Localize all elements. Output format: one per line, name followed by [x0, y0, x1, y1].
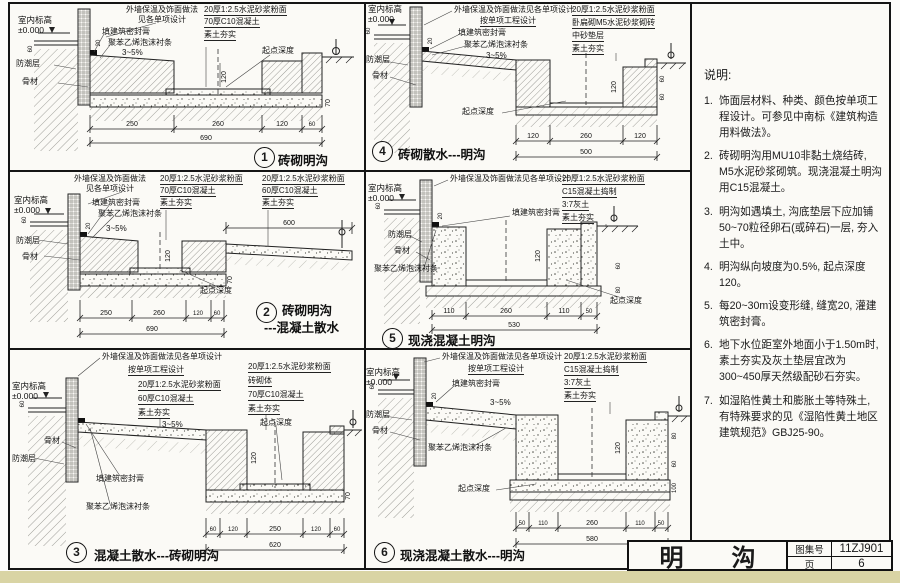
vdim-text: 60: [22, 216, 28, 223]
label-lime: 3:7灰土: [562, 200, 589, 211]
vdim-text: 60: [660, 93, 666, 100]
label-mortar: 20厚1:2.5水泥砂浆粉面: [138, 380, 221, 391]
label-level-value: ±0.000: [12, 392, 38, 402]
label-foam: 聚苯乙烯泡沫衬条: [108, 38, 172, 47]
detail-title: 砖砌明沟: [278, 150, 328, 169]
detail-title: 砖砌散水---明沟: [398, 144, 486, 163]
label-mortar: 20厚1:2.5水泥砂浆粉面: [204, 5, 287, 16]
label-lime: 3:7灰土: [564, 378, 591, 389]
detail-title-line2: ---混凝土散水: [264, 317, 339, 336]
note-number: 7.: [704, 393, 719, 441]
note-text: 地下水位距室外地面小于1.50m时, 素土夯实及灰土垫层宜改为300~450厚天…: [719, 337, 883, 385]
vdim-text: 80: [616, 286, 622, 293]
label-dpc: 防潮层: [366, 55, 390, 64]
label-sealant: 填建筑密封膏: [102, 27, 150, 36]
label-foam: 聚苯乙烯泡沫衬条: [86, 502, 150, 511]
label-brick-m5: 卧扁砌M5水泥砂浆砌砖: [572, 18, 655, 29]
label-level-value: ±0.000: [368, 15, 394, 25]
detail-1-panel: 250 260 120 60 690 120 70 60 20 外墙保温及饰面做…: [10, 3, 364, 170]
dim-text: 250: [100, 310, 112, 317]
detail-number-badge: 4: [372, 141, 393, 162]
vdim-text: 120: [221, 71, 228, 83]
label-c10-60: 60厚C10混凝土: [138, 394, 194, 405]
vdim-text: 20: [428, 37, 434, 44]
label-start-depth: 起点深度: [260, 418, 292, 427]
vdim-text: 60: [366, 27, 372, 34]
label-sealant: 填建筑密封膏: [512, 208, 560, 217]
vdim-text: 20: [86, 222, 92, 229]
label-slope: 3~5%: [162, 420, 183, 429]
note-item-3: 3.明沟如遇填土, 沟底垫层下应加铺50~70粒径卵石(或碎石)一层, 夯入土中…: [704, 204, 883, 252]
sheet-title: 明 沟: [629, 542, 788, 569]
note-text: 每20~30m设变形缝, 缝宽20, 灌建筑密封膏。: [719, 298, 883, 330]
note-item-5: 5.每20~30m设变形缝, 缝宽20, 灌建筑密封膏。: [704, 298, 883, 330]
note-number: 3.: [704, 204, 719, 252]
label-mortar: 20厚1:2.5水泥砂浆粉面: [564, 352, 647, 363]
label-sealant: 填建筑密封膏: [458, 28, 506, 37]
dim-text: 110: [538, 521, 548, 527]
detail-5-drawing: 110 260 110 50 530 120 60 80 60 20: [366, 172, 690, 348]
label-aggregate: 骨材: [372, 71, 388, 80]
dim-text: 120: [634, 133, 646, 140]
dim-text: 600: [283, 220, 295, 227]
label-mortar-right: 20厚1:2.5水泥砂浆粉面: [262, 174, 345, 185]
dim-text: 260: [580, 133, 592, 140]
label-dpc: 防潮层: [388, 230, 412, 239]
dim-total: 580: [586, 536, 598, 543]
label-level-value: ±0.000: [366, 378, 392, 388]
dim-text: 110: [558, 308, 569, 315]
dim-text: 260: [500, 308, 512, 315]
note-text: 明沟如遇填土, 沟底垫层下应加铺50~70粒径卵石(或碎石)一层, 夯入土中。: [719, 204, 883, 252]
label-sealant: 填建筑密封膏: [96, 474, 144, 483]
label-wall-finish: 外墙保温及饰面做法见各单项设计: [450, 174, 570, 183]
label-foam: 聚苯乙烯泡沫衬条: [428, 443, 492, 452]
label-aggregate: 骨材: [22, 77, 38, 86]
label-c10-70: 70厚C10混凝土: [160, 186, 216, 197]
scan-edge-strip: [0, 571, 900, 583]
label-per-project: 按单项工程设计: [480, 16, 536, 27]
label-wall-finish-2: 见各单项设计: [138, 15, 186, 24]
label-mortar-left: 20厚1:2.5水泥砂浆粉面: [160, 174, 243, 185]
label-wall-finish: 外墙保温及饰面做法见各单项设计: [102, 352, 222, 361]
note-number: 4.: [704, 259, 719, 291]
label-mortar: 20厚1:2.5水泥砂浆粉面: [572, 5, 655, 16]
vdim-text: 70: [227, 276, 234, 284]
label-slope: 3~5%: [486, 51, 507, 60]
dim-text: 120: [228, 527, 239, 533]
label-per-project: 按单项工程设计: [128, 365, 184, 376]
dim-text: 250: [269, 526, 281, 533]
note-item-7: 7.如湿陷性黄土和膨胀土等特殊土, 有特殊要求的见《湿陷性黄土地区建筑规范》GB…: [704, 393, 883, 441]
dim-text: 50: [519, 521, 526, 527]
vdim-text: 20: [96, 39, 102, 46]
detail-4-panel: 120 260 120 500 120 60 60 60 20 外墙保温及饰面做…: [366, 3, 690, 170]
label-start-depth: 起点深度: [200, 286, 232, 295]
note-number: 1.: [704, 93, 719, 141]
note-text: 明沟纵向坡度为0.5%, 起点深度120。: [719, 259, 883, 291]
detail-6-drawing: 50 110 260 110 50 580 120 80 60 100 60 2…: [366, 350, 690, 570]
title-block: 明 沟 图集号 11ZJ901 页 6: [627, 540, 893, 571]
label-c15: C15混凝土捣制: [562, 187, 617, 198]
label-foam: 聚苯乙烯泡沫衬条: [374, 264, 438, 273]
linework: [378, 358, 690, 518]
detail-title: 混凝土散水---砖砌明沟: [94, 545, 219, 564]
label-aggregate: 骨材: [372, 426, 388, 435]
label-wall-finish: 外墙保温及饰面做法见各单项设计: [442, 352, 562, 361]
vdim-text: 70: [345, 492, 352, 500]
label-level-value: ±0.000: [14, 206, 40, 216]
dim-total: 500: [580, 149, 592, 156]
label-slope: 3~5%: [490, 398, 511, 407]
title-block-grid: 图集号 11ZJ901 页 6: [788, 542, 891, 569]
label-rammed: 素土夯实: [204, 30, 236, 41]
dim-text: 120: [276, 121, 288, 128]
label-rammed-left: 素土夯实: [138, 408, 170, 419]
label-wall-finish: 外墙保温及饰面做法: [74, 174, 146, 183]
dim-total: 530: [508, 322, 520, 329]
label-slope: 3~5%: [122, 48, 143, 57]
dim-text: 50: [586, 309, 593, 315]
vdim-text: 60: [616, 262, 622, 269]
vdim-text: 70: [325, 99, 332, 107]
label-rammed-left: 素土夯实: [160, 198, 192, 209]
dim-text: 60: [309, 122, 316, 128]
label-aggregate: 骨材: [22, 252, 38, 261]
atlas-number-label: 图集号: [788, 542, 832, 557]
label-sealant: 填建筑密封膏: [452, 379, 500, 388]
dim-text: 260: [212, 121, 224, 128]
detail-title: 现浇混凝土散水---明沟: [400, 545, 525, 564]
label-rammed-right: 素土夯实: [262, 198, 294, 209]
label-start-depth: 起点深度: [458, 484, 490, 493]
detail-2-panel: 600 250 260 120 60 690 120 70 60 20 外墙保温…: [10, 172, 364, 348]
vdim-text: 20: [438, 212, 444, 219]
note-item-2: 2.砖砌明沟用MU10非黏土烧结砖, M5水泥砂浆砌筑。现浇混凝土明沟用C15混…: [704, 148, 883, 196]
label-aggregate: 骨材: [394, 246, 410, 255]
dim-text: 60: [334, 527, 341, 533]
dim-text: 120: [311, 527, 322, 533]
label-rammed: 素土夯实: [572, 44, 604, 55]
linework: [34, 9, 354, 151]
dim-total: 620: [269, 542, 281, 549]
label-foam: 聚苯乙烯泡沫衬条: [464, 40, 528, 49]
vdim-text: 60: [660, 75, 666, 82]
linework: [28, 378, 362, 546]
label-c10-70: 70厚C10混凝土: [248, 390, 304, 401]
label-dpc: 防潮层: [16, 236, 40, 245]
note-item-1: 1.饰面层材料、种类、颜色按单项工程设计。可参见中南标《建筑构造用料做法》。: [704, 93, 883, 141]
notes-heading: 说明:: [704, 66, 883, 83]
vdim-text: 60: [672, 460, 678, 467]
label-wall-finish-2: 见各单项设计: [86, 184, 134, 193]
vdim-text: 80: [672, 432, 678, 439]
label-dpc: 防潮层: [16, 59, 40, 68]
dim-text: 120: [527, 133, 539, 140]
dim-text: 260: [153, 310, 165, 317]
dim-total: 690: [146, 326, 158, 333]
label-c10-70: 70厚C10混凝土: [204, 17, 260, 28]
vdim-text: 120: [615, 442, 622, 454]
label-per-project: 按单项工程设计: [468, 364, 524, 375]
vdim-text: 100: [672, 482, 678, 493]
label-rammed: 素土夯实: [562, 213, 594, 224]
vdim-text: 120: [165, 250, 172, 262]
detail-number-badge: 6: [374, 542, 395, 563]
dim-text: 50: [658, 521, 665, 527]
detail-number-badge: 5: [382, 328, 403, 349]
label-mortar-right: 20厚1:2.5水泥砂浆粉面: [248, 362, 331, 373]
label-c15: C15混凝土捣制: [564, 365, 619, 376]
note-number: 2.: [704, 148, 719, 196]
label-foam: 聚苯乙烯泡沫衬条: [98, 209, 162, 218]
note-text: 饰面层材料、种类、颜色按单项工程设计。可参见中南标《建筑构造用料做法》。: [719, 93, 883, 141]
linework: [384, 180, 638, 324]
detail-3-panel: 60 120 250 120 60 620 120 70 60 外墙保温及饰面做…: [10, 350, 364, 570]
vdim-text: 120: [535, 250, 542, 262]
note-item-4: 4.明沟纵向坡度为0.5%, 起点深度120。: [704, 259, 883, 291]
dim-total: 690: [200, 135, 212, 142]
dim-text: 60: [214, 311, 221, 317]
label-start-depth: 起点深度: [262, 46, 294, 55]
vdim-text: 60: [28, 45, 34, 52]
vdim-text: 20: [432, 392, 438, 399]
label-c10-60: 60厚C10混凝土: [262, 186, 318, 197]
note-text: 如湿陷性黄土和膨胀土等特殊土, 有特殊要求的见《湿陷性黄土地区建筑规范》GBJ2…: [719, 393, 883, 441]
label-sealant: 填建筑密封膏: [92, 198, 140, 207]
atlas-number-value: 11ZJ901: [832, 542, 891, 557]
vdim-text: 120: [251, 452, 258, 464]
dim-text: 110: [635, 521, 645, 527]
label-dpc: 防潮层: [12, 454, 36, 463]
label-wall-finish: 外墙保温及饰面做法见各单项设计: [454, 5, 574, 14]
label-brick-body: 砖砌体: [248, 376, 272, 387]
note-number: 5.: [704, 298, 719, 330]
page-number: 6: [832, 557, 891, 571]
note-text: 砖砌明沟用MU10非黏土烧结砖, M5水泥砂浆砌筑。现浇混凝土明沟用C15混凝土…: [719, 148, 883, 196]
dim-text: 250: [126, 121, 138, 128]
label-level-value: ±0.000: [368, 194, 394, 204]
dim-text: 110: [443, 308, 454, 315]
detail-number-badge: 3: [66, 542, 87, 563]
label-start-depth: 起点深度: [610, 296, 642, 305]
detail-6-panel: 50 110 260 110 50 580 120 80 60 100 60 2…: [366, 350, 690, 570]
label-wall-finish: 外墙保温及饰面做法: [126, 5, 198, 14]
page-label: 页: [788, 557, 832, 571]
label-mortar: 20厚1:2.5水泥砂浆粉面: [562, 174, 645, 185]
label-rammed: 素土夯实: [564, 391, 596, 402]
detail-1-drawing: 250 260 120 60 690 120 70 60 20: [10, 3, 364, 170]
label-slope: 3~5%: [106, 224, 127, 233]
label-start-depth: 起点深度: [462, 107, 494, 116]
label-aggregate: 骨材: [44, 436, 60, 445]
detail-number-badge: 1: [254, 147, 275, 168]
detail-title: 现浇混凝土明沟: [408, 330, 496, 349]
dim-text: 260: [586, 520, 598, 527]
label-dpc: 防潮层: [366, 410, 390, 419]
label-sand-bed: 中砂垫层: [572, 31, 604, 42]
detail-5-panel: 110 260 110 50 530 120 60 80 60 20 外墙保温及…: [366, 172, 690, 348]
label-rammed-right: 素土夯实: [248, 404, 280, 415]
note-number: 6.: [704, 337, 719, 385]
vdim-text: 120: [611, 81, 618, 93]
dim-text: 60: [210, 527, 217, 533]
atlas-page: 250 260 120 60 690 120 70 60 20 外墙保温及饰面做…: [0, 0, 900, 583]
label-level-value: ±0.000: [18, 26, 44, 36]
dim-text: 120: [193, 311, 204, 317]
notes-panel: 说明: 1.饰面层材料、种类、颜色按单项工程设计。可参见中南标《建筑构造用料做法…: [692, 2, 891, 540]
note-item-6: 6.地下水位距室外地面小于1.50m时, 素土夯实及灰土垫层宜改为300~450…: [704, 337, 883, 385]
